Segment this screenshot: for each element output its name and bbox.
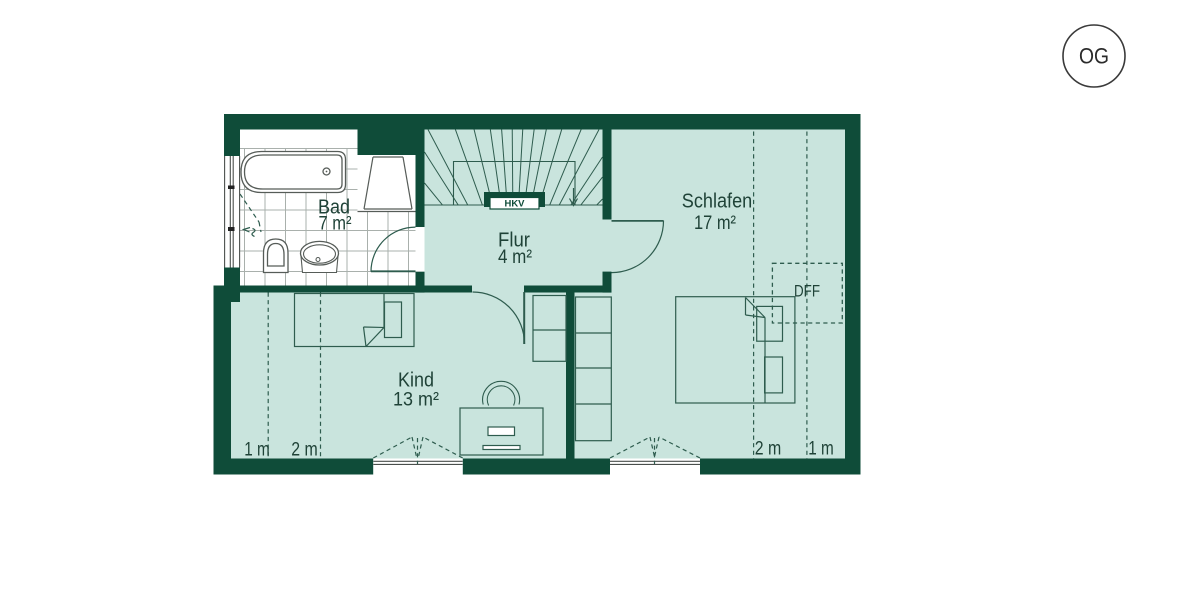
svg-text:17 m²: 17 m² <box>694 213 736 234</box>
svg-text:4 m²: 4 m² <box>498 247 532 268</box>
svg-text:DFF: DFF <box>794 282 820 301</box>
svg-text:Schlafen: Schlafen <box>682 191 753 213</box>
svg-text:1 m: 1 m <box>808 439 834 460</box>
svg-text:OG: OG <box>1079 44 1109 69</box>
svg-text:1 m: 1 m <box>244 440 270 461</box>
svg-text:2 m: 2 m <box>291 440 318 461</box>
svg-text:13 m²: 13 m² <box>393 390 439 411</box>
svg-text:HKV: HKV <box>505 199 526 210</box>
svg-text:7 m²: 7 m² <box>319 214 352 235</box>
svg-text:Kind: Kind <box>398 370 434 392</box>
svg-text:2 m: 2 m <box>755 439 782 460</box>
